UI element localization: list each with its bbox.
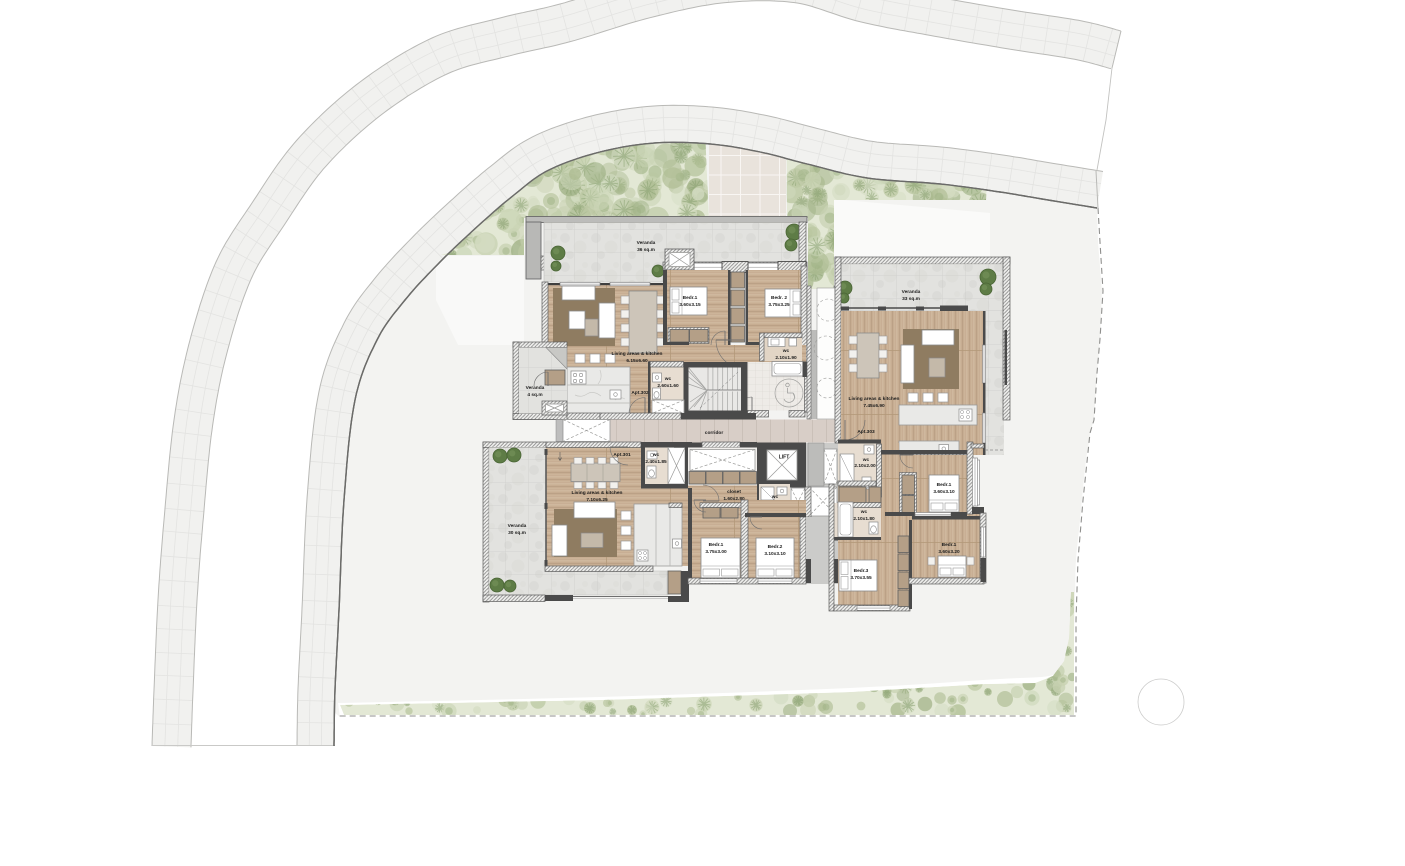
svg-text:36 sq.m: 36 sq.m <box>637 247 655 253</box>
svg-text:wc: wc <box>860 510 868 515</box>
svg-text:corridor: corridor <box>705 430 724 436</box>
svg-text:3.75x3.00: 3.75x3.00 <box>705 549 727 555</box>
svg-text:Veranda: Veranda <box>637 240 656 246</box>
svg-text:3.75x3.25: 3.75x3.25 <box>768 302 790 308</box>
svg-text:Apt.303: Apt.303 <box>857 429 875 435</box>
svg-text:Living areas & kitchen: Living areas & kitchen <box>849 396 900 402</box>
svg-text:2.60x1.60: 2.60x1.60 <box>657 383 679 389</box>
svg-text:3.60x3.10: 3.60x3.10 <box>933 489 955 495</box>
svg-text:wc: wc <box>664 377 672 382</box>
svg-text:Bedr.1: Bedr.1 <box>709 542 724 548</box>
svg-text:Bedr.2: Bedr.2 <box>768 544 783 550</box>
svg-text:2.10x1.80: 2.10x1.80 <box>853 516 875 522</box>
svg-text:Living areas & kitchen: Living areas & kitchen <box>612 351 663 357</box>
svg-text:6.15x6.60: 6.15x6.60 <box>626 358 648 364</box>
svg-text:Veranda: Veranda <box>526 385 545 391</box>
svg-text:Bedr.3: Bedr.3 <box>854 568 869 574</box>
svg-text:wc: wc <box>652 453 660 458</box>
svg-text:Bedr.1: Bedr.1 <box>683 295 698 301</box>
svg-text:Apt.302: Apt.302 <box>631 390 649 396</box>
svg-text:3.70x3.55: 3.70x3.55 <box>850 575 872 581</box>
svg-text:Bedr.1: Bedr.1 <box>937 482 952 488</box>
svg-text:wc: wc <box>862 458 870 463</box>
svg-text:3.60x3.20: 3.60x3.20 <box>938 549 960 555</box>
svg-text:2.10x2.00: 2.10x2.00 <box>854 463 876 469</box>
svg-text:7.10x6.25: 7.10x6.25 <box>586 497 608 503</box>
svg-text:2.10x1.90: 2.10x1.90 <box>775 355 797 361</box>
svg-text:2.40x1.85: 2.40x1.85 <box>645 459 667 465</box>
svg-text:Veranda: Veranda <box>508 523 527 529</box>
svg-text:3.60x3.15: 3.60x3.15 <box>679 302 701 308</box>
svg-text:7.45x6.90: 7.45x6.90 <box>863 403 885 409</box>
svg-text:4 sq.m: 4 sq.m <box>527 392 542 398</box>
svg-text:33 sq.m: 33 sq.m <box>902 296 920 302</box>
svg-text:Veranda: Veranda <box>902 289 921 295</box>
svg-text:closet: closet <box>727 489 741 495</box>
svg-text:3.10x3.10: 3.10x3.10 <box>764 551 786 557</box>
svg-text:Living areas & kitchen: Living areas & kitchen <box>572 490 623 496</box>
svg-text:LIFT: LIFT <box>779 455 790 461</box>
svg-text:30 sq.m: 30 sq.m <box>508 530 526 536</box>
svg-text:wc: wc <box>782 349 790 354</box>
svg-text:Bedr.1: Bedr.1 <box>942 542 957 548</box>
svg-text:Apt.301: Apt.301 <box>613 452 631 458</box>
svg-text:Bedr. 2: Bedr. 2 <box>771 295 787 301</box>
svg-text:wc: wc <box>771 495 779 500</box>
